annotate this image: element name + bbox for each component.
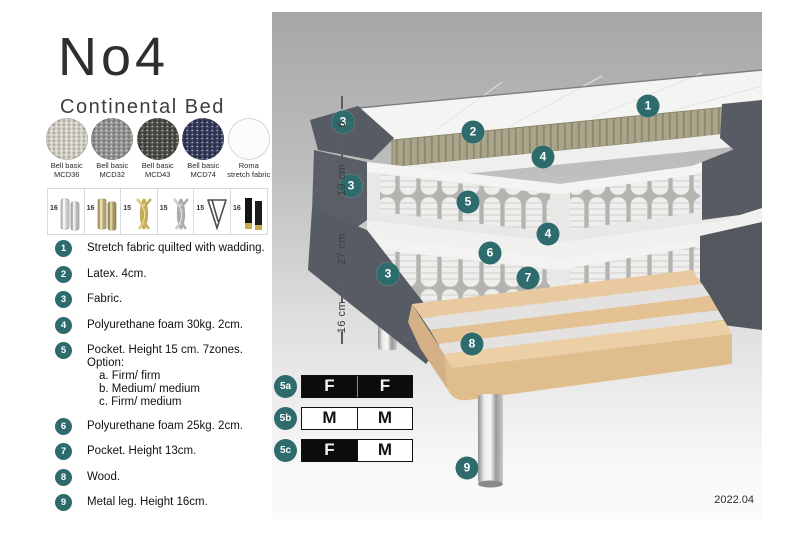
callout-badge: 1 <box>637 95 660 118</box>
feature-text: Wood. <box>87 469 120 486</box>
fabric-label-line2: MCD32 <box>90 171 136 180</box>
feature-item: 7Pocket. Height 13cm. <box>55 443 270 460</box>
dimension-segment: 16 cm <box>330 290 354 344</box>
product-title: No4 <box>58 26 169 88</box>
feature-item: 4Polyurethane foam 30kg. 2cm. <box>55 317 270 334</box>
fabric-label: Bell basicMCD32 <box>90 162 136 179</box>
feature-text-main: Fabric. <box>87 293 122 306</box>
leg-height-label: 16 <box>50 205 58 212</box>
fabric-label-line2: MCD36 <box>44 171 90 180</box>
leg-icon-twist-gold <box>131 195 157 231</box>
feature-option: c. Firm/ medium <box>99 396 270 409</box>
leg-option: 15 <box>120 188 158 235</box>
fabric-label: Bell basicMCD36 <box>44 162 90 179</box>
dimension-tick-bottom <box>341 277 343 290</box>
dimension-segment: 6 <box>330 96 354 152</box>
callout-badge: 4 <box>532 146 555 169</box>
leg-option: 15 <box>193 188 231 235</box>
feature-item: 5Pocket. Height 15 cm. 7zones. Option:a.… <box>55 342 270 409</box>
feature-text: Stretch fabric quilted with wadding. <box>87 240 265 257</box>
fabric-option: Bell basicMCD36 <box>44 118 90 179</box>
feature-item: 1Stretch fabric quilted with wadding. <box>55 240 270 257</box>
feature-text: Metal leg. Height 16cm. <box>87 494 208 511</box>
leg-icon-cylinder-silver <box>58 195 84 231</box>
firmness-cell: F <box>357 376 412 397</box>
feature-number-badge: 1 <box>55 240 72 257</box>
leg-icon-hairpin <box>204 195 230 231</box>
leg-option: 16 <box>230 188 268 235</box>
fabric-wrap-right-middle <box>702 138 762 220</box>
dimension-label: 16 cm <box>336 291 348 343</box>
metal-leg-front <box>478 394 503 488</box>
info-column: No4 Continental Bed Bell basicMCD36Bell … <box>0 0 272 533</box>
leg-height-label: 15 <box>160 205 168 212</box>
feature-option: b. Medium/ medium <box>99 383 270 396</box>
leg-height-label: 16 <box>87 205 95 212</box>
product-subtitle: Continental Bed <box>60 96 225 119</box>
firmness-box: FM <box>301 439 413 462</box>
fabric-swatch-row: Bell basicMCD36Bell basicMCD32Bell basic… <box>44 118 272 179</box>
fabric-label: Romastretch fabric <box>226 162 272 179</box>
firmness-cell: M <box>302 408 357 429</box>
feature-text: Latex. 4cm. <box>87 266 146 283</box>
feature-number-badge: 2 <box>55 266 72 283</box>
bed-diagram-panel: 123334456789 619 cm27 cm16 cm 5aFF5bMM5c… <box>272 12 762 520</box>
firmness-cell: M <box>357 440 412 461</box>
dimension-label: 27 cm <box>336 223 348 275</box>
firmness-row: 5bMM <box>274 407 413 430</box>
fabric-option: Bell basicMCD32 <box>90 118 136 179</box>
firmness-cell: F <box>302 440 357 461</box>
callout-badge: 7 <box>517 267 540 290</box>
callout-badge: 5 <box>457 191 480 214</box>
firmness-cell: F <box>302 376 357 397</box>
leg-option: 16 <box>84 188 122 235</box>
fabric-label-line2: MCD74 <box>181 171 227 180</box>
fabric-label: Bell basicMCD43 <box>135 162 181 179</box>
dimension-segment: 27 cm <box>330 208 354 290</box>
feature-text-main: Pocket. Height 13cm. <box>87 445 196 458</box>
callout-badge: 8 <box>461 333 484 356</box>
leg-height-label: 15 <box>196 205 204 212</box>
leg-height-label: 15 <box>123 205 131 212</box>
firmness-legend: 5aFF5bMM5cFM <box>274 375 413 471</box>
spec-sheet: No4 Continental Bed Bell basicMCD36Bell … <box>0 0 800 533</box>
feature-number-badge: 9 <box>55 494 72 511</box>
version-label: 2022.04 <box>714 494 754 506</box>
feature-number-badge: 8 <box>55 469 72 486</box>
fabric-swatch <box>137 118 179 160</box>
callout-badge: 4 <box>537 223 560 246</box>
feature-text-main: Stretch fabric quilted with wadding. <box>87 242 265 255</box>
fabric-label: Bell basicMCD74 <box>181 162 227 179</box>
feature-item: 3Fabric. <box>55 291 270 308</box>
fabric-swatch <box>91 118 133 160</box>
firmness-box: MM <box>301 407 413 430</box>
callout-badge: 6 <box>479 242 502 265</box>
feature-text-main: Polyurethane foam 25kg. 2cm. <box>87 420 243 433</box>
fabric-option: Bell basicMCD74 <box>181 118 227 179</box>
feature-number-badge: 6 <box>55 418 72 435</box>
leg-options-row: 161615151516 <box>47 188 273 235</box>
fabric-swatch <box>228 118 270 160</box>
feature-item: 8Wood. <box>55 469 270 486</box>
feature-text: Fabric. <box>87 291 122 308</box>
feature-item: 2Latex. 4cm. <box>55 266 270 283</box>
callout-badge: 3 <box>377 263 400 286</box>
fabric-swatch <box>46 118 88 160</box>
firmness-badge: 5b <box>274 407 297 430</box>
fabric-option: Romastretch fabric <box>226 118 272 179</box>
feature-text: Pocket. Height 13cm. <box>87 443 196 460</box>
fabric-option: Bell basicMCD43 <box>135 118 181 179</box>
firmness-badge: 5a <box>274 375 297 398</box>
feature-text: Polyurethane foam 25kg. 2cm. <box>87 418 243 435</box>
feature-text-main: Metal leg. Height 16cm. <box>87 496 208 509</box>
feature-text-main: Wood. <box>87 471 120 484</box>
feature-item: 9Metal leg. Height 16cm. <box>55 494 270 511</box>
firmness-row: 5cFM <box>274 439 413 462</box>
firmness-cell: M <box>357 408 412 429</box>
firmness-box: FF <box>301 375 413 398</box>
leg-option: 15 <box>157 188 195 235</box>
feature-text-main: Pocket. Height 15 cm. 7zones. Option: <box>87 344 270 370</box>
feature-number-badge: 7 <box>55 443 72 460</box>
dimension-segment: 19 cm <box>330 152 354 208</box>
fabric-swatch <box>182 118 224 160</box>
firmness-row: 5aFF <box>274 375 413 398</box>
feature-number-badge: 4 <box>55 317 72 334</box>
leg-icon-cylinder-brass <box>95 195 121 231</box>
leg-icon-twist-silver <box>168 195 194 231</box>
callout-badge: 9 <box>456 457 479 480</box>
leg-height-label: 16 <box>233 205 241 212</box>
feature-option: a. Firm/ firm <box>99 370 270 383</box>
leg-option: 16 <box>47 188 85 235</box>
feature-number-badge: 3 <box>55 291 72 308</box>
feature-list: 1Stretch fabric quilted with wadding.2La… <box>55 240 270 520</box>
fabric-label-line2: MCD43 <box>135 171 181 180</box>
feature-item: 6Polyurethane foam 25kg. 2cm. <box>55 418 270 435</box>
feature-number-badge: 5 <box>55 342 72 359</box>
feature-text: Pocket. Height 15 cm. 7zones. Option:a. … <box>87 342 270 409</box>
leg-icon-black-gold <box>241 195 267 231</box>
feature-text-main: Polyurethane foam 30kg. 2cm. <box>87 319 243 332</box>
feature-text-main: Latex. 4cm. <box>87 268 146 281</box>
feature-text: Polyurethane foam 30kg. 2cm. <box>87 317 243 334</box>
firmness-badge: 5c <box>274 439 297 462</box>
callout-badge: 2 <box>462 121 485 144</box>
dimension-label: 19 cm <box>336 154 348 206</box>
dimension-tick-top <box>341 208 343 221</box>
dimension-label: 6 <box>336 98 348 150</box>
fabric-label-line2: stretch fabric <box>226 171 272 180</box>
